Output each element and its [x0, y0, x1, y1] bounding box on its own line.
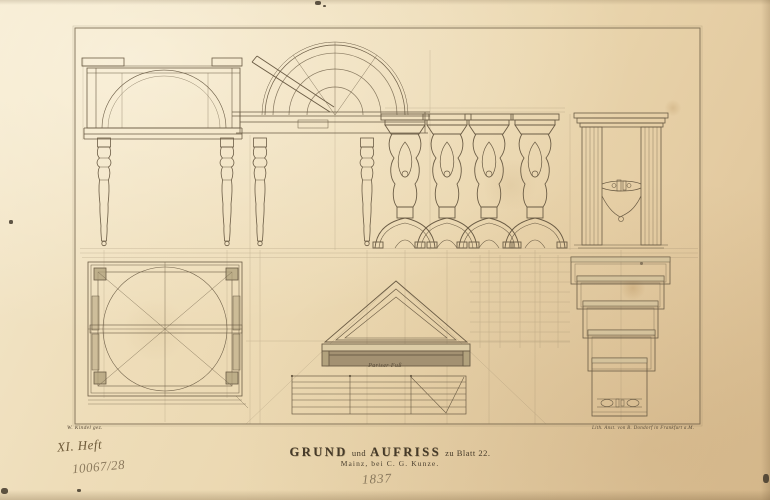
title-word-aufriss: AUFRISS: [370, 445, 441, 459]
paper-speck: [9, 220, 13, 224]
nested-tables-plan: [571, 257, 670, 416]
handwritten-year: 1837: [362, 470, 393, 488]
scale-bar-label: Pariser Fuß: [330, 363, 440, 369]
paper-speck: [77, 489, 81, 492]
baluster-supports-elevation: [373, 114, 567, 248]
table-elevation-with-leaf-fan: [232, 42, 430, 246]
artist-credit: W. Kindel gez.: [67, 425, 103, 431]
paper-speck: [763, 474, 769, 483]
table-side-elevation: [574, 113, 668, 248]
paper-edge-shadow-right: [761, 0, 770, 500]
paper-edge-shadow-top: [0, 0, 770, 5]
table-top-plan: [88, 262, 248, 408]
title-word-grund: GRUND: [289, 445, 347, 459]
table-front-elevation: [82, 58, 242, 246]
scale-bar: [291, 375, 466, 414]
engraving-plate-drawing: [0, 0, 770, 500]
paper-speck: [323, 5, 326, 7]
publisher-imprint: Mainz, bei C. G. Kunze.: [240, 459, 540, 468]
paper-speck: [1, 488, 8, 494]
lithographer-credit: Lith. Anst. von B. Dondorf in Frankfurt …: [592, 426, 694, 431]
title-conjunction: und: [352, 448, 366, 458]
handwritten-heft-note: XI. Heft: [56, 436, 102, 455]
title-blatt-number: zu Blatt 22.: [445, 448, 490, 458]
paper-edge-shadow-bottom: [0, 490, 770, 500]
paper-speck: [640, 262, 643, 265]
paper-speck: [315, 1, 321, 5]
scanned-sheet: Pariser Fuß W. Kindel gez. Lith. Anst. v…: [0, 0, 770, 500]
leaf-triangle-plan: [322, 281, 470, 366]
